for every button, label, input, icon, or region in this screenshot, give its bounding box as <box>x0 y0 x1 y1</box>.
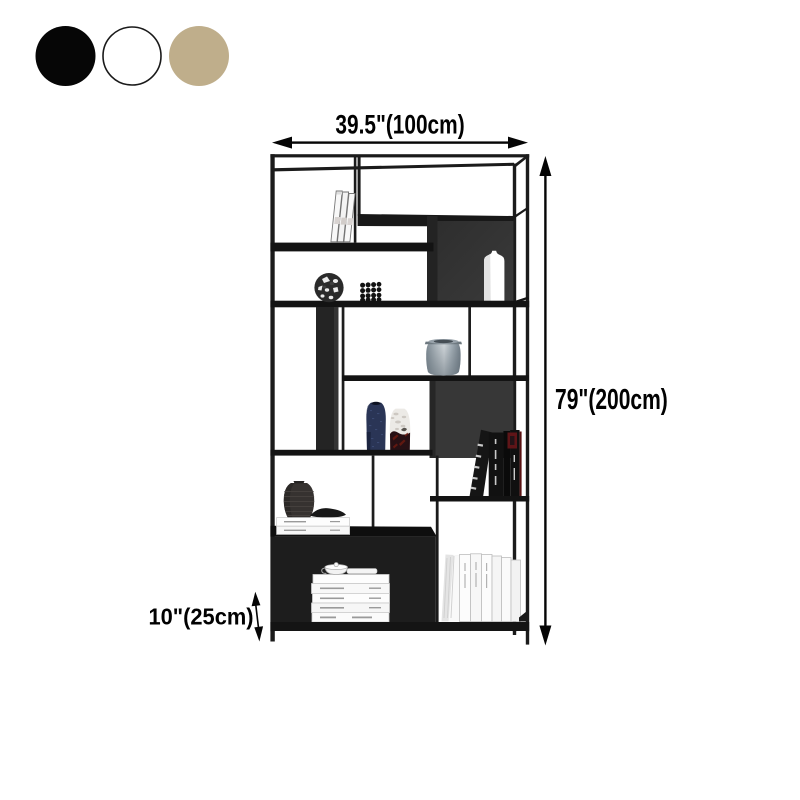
svg-text:79"(200cm): 79"(200cm) <box>555 384 668 416</box>
svg-text:10"(25cm): 10"(25cm) <box>148 603 253 630</box>
svg-text:39.5"(100cm): 39.5"(100cm) <box>335 110 464 140</box>
